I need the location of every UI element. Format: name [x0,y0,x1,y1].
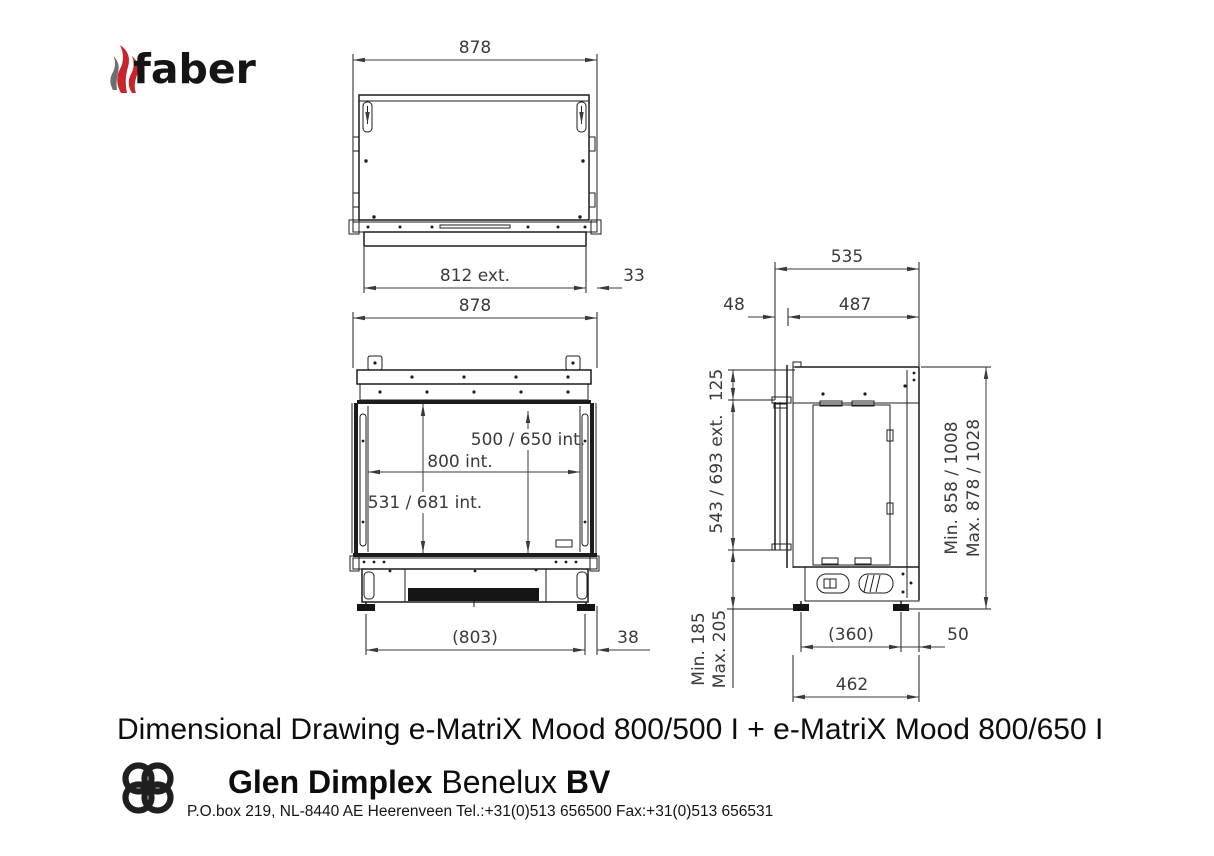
company-address: P.O.box 219, NL-8440 AE Heerenveen Tel.:… [187,803,773,821]
dim-front-feet-span: (803) [452,628,498,648]
dim-side-front-offset: 48 [723,295,745,315]
dim-side-height-max: Max. 878 / 1028 [964,419,984,557]
dim-side-base-depth: 462 [836,675,868,695]
drawing-title: Dimensional Drawing e-MatriX Mood 800/50… [117,713,1103,747]
dim-front-side-offset: 38 [617,628,639,648]
top-view-dimension-labels: 878 812 ext. 33 [440,38,645,286]
dim-side-floor-min: Min. 185 [689,612,709,685]
celtic-knot-icon [117,756,179,820]
dim-side-body-depth: 487 [839,295,871,315]
dim-side-overall-depth: 535 [831,247,863,267]
dim-front-inner-height-total: 531 / 681 int. [368,493,482,513]
dim-top-ext-width: 812 ext. [440,266,510,286]
dimensional-drawing-page: faber [0,0,1214,856]
dim-top-side-offset: 33 [623,266,645,286]
dim-front-inner-width: 800 int. [427,452,492,472]
dim-side-top-inset: 125 [707,369,727,401]
company-name: Glen Dimplex Benelux BV [228,764,610,801]
dim-front-inner-height: 500 / 650 int. [471,430,585,450]
top-view-drawing [349,54,622,293]
company-name-regular: Benelux [433,764,566,800]
dim-side-glass-height: 543 / 693 ext. [707,414,727,533]
dim-side-height-min: Min. 858 / 1008 [942,421,962,554]
dim-side-feet-span: (360) [828,625,874,645]
dim-side-rear-offset: 50 [947,625,969,645]
dim-top-overall-width: 878 [459,38,491,58]
front-view-drawing [350,312,650,655]
company-name-bold: Glen Dimplex [228,764,433,800]
dim-side-floor-max: Max. 205 [710,610,730,688]
company-name-suffix: BV [566,764,610,800]
dim-front-overall-width: 878 [459,296,491,316]
